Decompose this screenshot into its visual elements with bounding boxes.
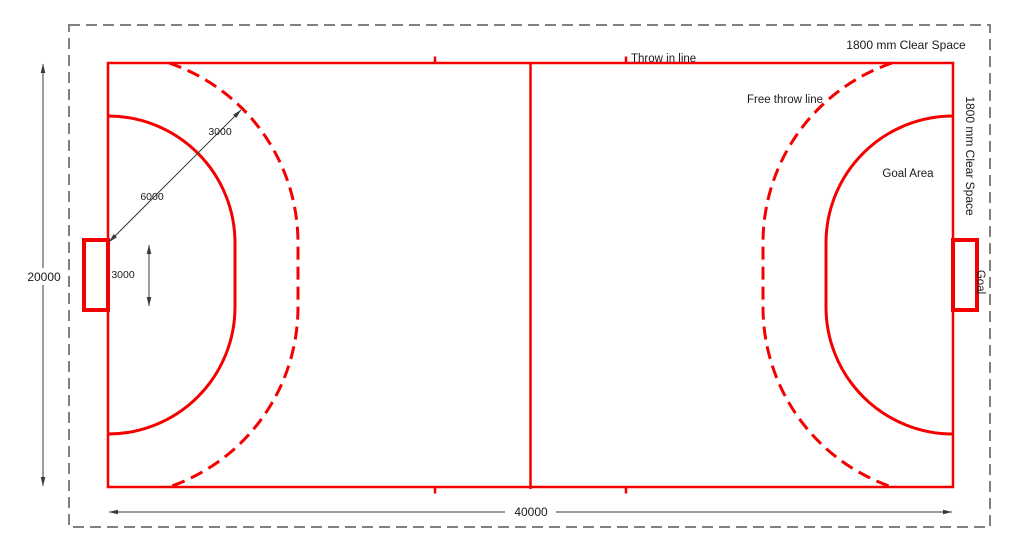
free-throw-line-label: Free throw line [747,94,823,106]
dim-court-length-value: 40000 [514,505,548,519]
right-goal-area-line [826,116,953,434]
goal-label: Goal [974,270,986,294]
right-goal [953,240,977,310]
dim-free-throw-gap-value: 3000 [208,126,232,138]
left-goal [84,240,108,310]
goal-area-label: Goal Area [882,168,934,180]
dim-goal-width: 3000 [111,245,149,306]
dim-court-width-value: 20000 [27,270,61,284]
handball-court-diagram: 20000 40000 3000 3000 6000 Throw in line… [0,0,1024,557]
clear-space-top-label: 1800 mm Clear Space [846,38,966,52]
dim-goal-area-radius-value: 6000 [140,191,164,203]
dim-court-width: 20000 [24,64,63,486]
court-drawing-svg: 20000 40000 3000 3000 6000 Throw in line… [0,0,1024,557]
clear-space-right-label: 1800 mm Clear Space [963,96,977,216]
dim-goal-width-value: 3000 [111,269,135,281]
throw-in-line-label: Throw in line [631,53,696,65]
dim-goal-area-radius: 3000 6000 [109,110,241,242]
dim-court-length: 40000 [109,503,952,519]
